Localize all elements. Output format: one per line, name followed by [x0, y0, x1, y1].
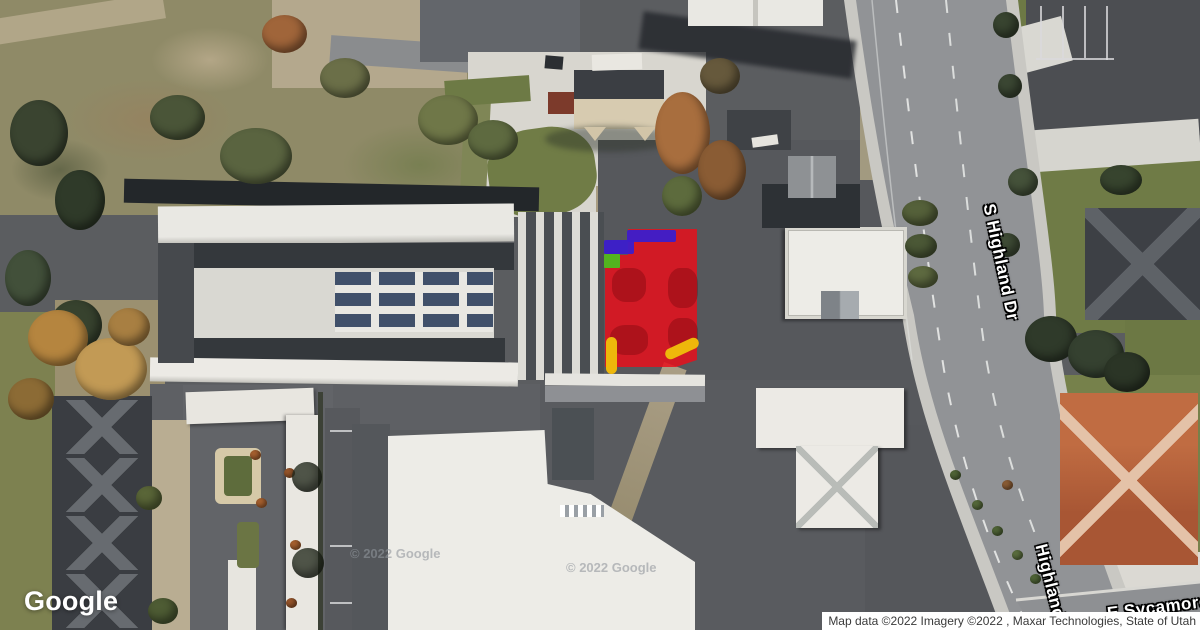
tree [136, 486, 162, 510]
hedge [902, 200, 938, 226]
apartment-gable [52, 400, 152, 454]
shrub [1012, 550, 1023, 560]
tree [10, 100, 68, 166]
annex-lower-roof [796, 446, 878, 528]
shrub [972, 500, 983, 510]
red-shed [548, 92, 574, 114]
warehouse-dark-roof-section [552, 408, 594, 480]
shrub [950, 470, 961, 480]
mini-storage-rows [518, 212, 604, 380]
tree [220, 128, 292, 184]
apartment-gable [52, 516, 152, 570]
dumpster [544, 55, 563, 70]
house-roof [1085, 208, 1200, 320]
parcel-substructure-shade [668, 268, 698, 308]
church-tan-roof [574, 99, 664, 129]
office-gable [821, 291, 859, 319]
fence-line [318, 392, 323, 630]
warehouse-west-wall [352, 424, 390, 630]
tree [8, 378, 54, 420]
storage-building-top-roof [158, 203, 514, 244]
carport-roof [228, 560, 256, 630]
tree [993, 12, 1019, 38]
storage-west-end [158, 243, 194, 363]
yellow-access-marker[interactable] [606, 337, 617, 374]
tree [292, 548, 324, 578]
tree [5, 250, 51, 306]
storage-building-bottom-roof [150, 357, 518, 386]
blue-edge-marker[interactable] [604, 240, 634, 254]
shrub [286, 598, 297, 608]
tree [320, 58, 370, 98]
parcel-substructure-shade [612, 268, 646, 302]
shrub [290, 540, 301, 550]
shrub [992, 526, 1003, 536]
tree [150, 95, 205, 140]
tree [1100, 165, 1142, 195]
planter [237, 522, 259, 568]
shrub [256, 498, 267, 508]
strip-building-roof-gray [545, 386, 705, 402]
green-corner-marker[interactable] [604, 254, 620, 268]
hedge [905, 234, 937, 258]
church-dark-roof [574, 70, 664, 100]
tree [262, 15, 307, 53]
tree [1008, 168, 1038, 196]
planter-lawn [224, 456, 252, 496]
white-canopy [592, 53, 643, 71]
annex-building-roof [756, 388, 904, 448]
tree [1104, 352, 1150, 392]
tree [998, 74, 1022, 98]
blue-edge-marker[interactable] [627, 230, 676, 242]
map-attribution: Map data ©2022 Imagery ©2022 , Maxar Tec… [822, 612, 1200, 630]
shrub [1002, 480, 1013, 490]
storage-alley [170, 243, 514, 270]
hedge [908, 266, 938, 288]
imagery-watermark: © 2022 Google [350, 546, 441, 561]
church-gable [584, 127, 606, 141]
satellite-map-canvas[interactable]: S Highland Dr Highland E Sycamore L © 20… [0, 0, 1200, 630]
tree [662, 176, 702, 216]
tree [468, 120, 518, 160]
gable-house-roof [788, 156, 836, 198]
google-logo[interactable]: Google [24, 586, 118, 617]
pyramid-building-roof [688, 0, 823, 26]
tree [698, 140, 746, 200]
skylight-row [560, 505, 604, 517]
imagery-watermark: © 2022 Google [566, 560, 657, 575]
strip-building-roof [545, 373, 705, 386]
tree [108, 308, 150, 346]
shrub [250, 450, 261, 460]
church-gable [634, 127, 656, 141]
tree [55, 170, 105, 230]
tree [292, 462, 322, 492]
solar-panels [335, 272, 493, 332]
tree [148, 598, 178, 624]
tree [700, 58, 740, 94]
hip-roof-building [1060, 393, 1198, 565]
tree [75, 338, 147, 400]
